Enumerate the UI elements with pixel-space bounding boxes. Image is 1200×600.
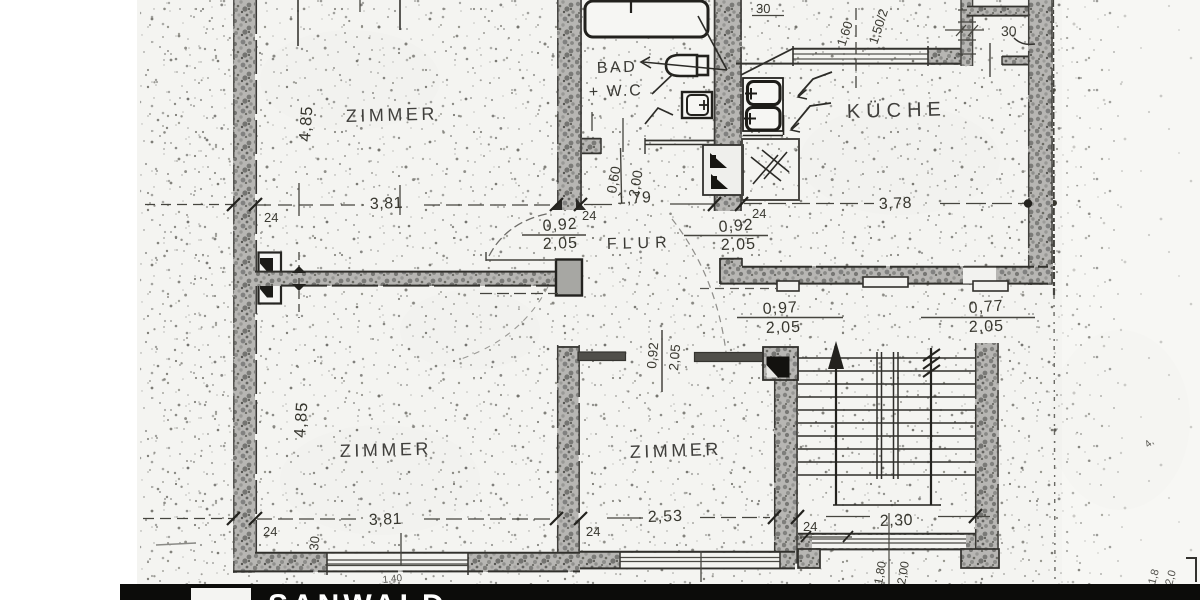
svg-text:24: 24 [264, 210, 278, 225]
svg-text:2,05: 2,05 [721, 236, 757, 254]
svg-text:30: 30 [306, 535, 322, 551]
svg-text:SANWALD: SANWALD [268, 589, 448, 600]
svg-text:FLUR: FLUR [607, 234, 673, 253]
svg-text:24: 24 [586, 524, 600, 539]
svg-text:4,85: 4,85 [296, 105, 316, 142]
svg-text:+ W.C: + W.C [589, 82, 644, 101]
svg-text:ZIMMER: ZIMMER [346, 104, 438, 126]
svg-text:2,05: 2,05 [543, 235, 579, 253]
svg-text:0,92: 0,92 [644, 342, 661, 369]
svg-text:0,92: 0,92 [718, 217, 754, 236]
svg-text:4,85: 4,85 [291, 401, 311, 438]
svg-text:2,05: 2,05 [766, 319, 802, 337]
svg-text:30: 30 [756, 1, 770, 16]
svg-text:3,81: 3,81 [369, 511, 403, 529]
svg-text:24: 24 [582, 208, 596, 223]
svg-text:24: 24 [752, 206, 766, 221]
svg-text:24: 24 [263, 524, 277, 539]
svg-text:0,97: 0,97 [762, 299, 798, 318]
svg-text:2,05: 2,05 [969, 318, 1005, 336]
svg-text:0,92: 0,92 [542, 216, 578, 235]
svg-text:2,53: 2,53 [648, 508, 684, 526]
svg-text:ZIMMER: ZIMMER [629, 439, 722, 462]
svg-text:3,78: 3,78 [879, 195, 913, 213]
svg-text:0,77: 0,77 [968, 298, 1004, 317]
svg-text:3,81: 3,81 [370, 195, 404, 213]
svg-text:ZIMMER: ZIMMER [340, 439, 432, 461]
svg-text:30: 30 [1001, 23, 1017, 39]
svg-text:24: 24 [803, 519, 817, 534]
svg-text:2,05: 2,05 [666, 344, 683, 371]
svg-text:BAD: BAD [597, 59, 638, 77]
svg-text:KÜCHE: KÜCHE [847, 98, 948, 123]
svg-text:2,30: 2,30 [880, 512, 914, 530]
